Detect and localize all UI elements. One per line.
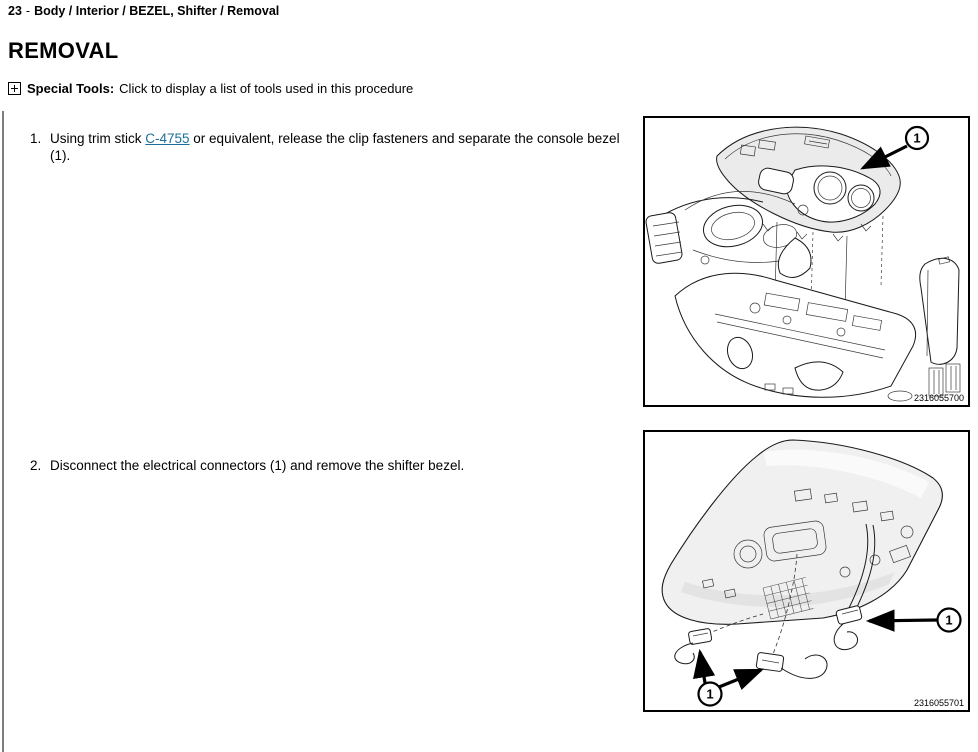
figure-shifter-bezel-connectors: 1 1 2316055701: [643, 430, 970, 712]
figure-console-bezel-removal: 1 2316055700: [643, 116, 970, 407]
breadcrumb-path: Body / Interior / BEZEL, Shifter / Remov…: [34, 4, 279, 18]
figure-number: 2316055701: [914, 698, 964, 708]
callout-label: 1: [945, 613, 952, 628]
service-manual-page: { "breadcrumb": { "section_number": "23"…: [0, 0, 978, 752]
callout-label: 1: [706, 687, 713, 702]
expand-plus-icon[interactable]: [8, 82, 21, 95]
step-text: Disconnect the electrical connectors (1)…: [50, 457, 464, 474]
special-tools-expander[interactable]: Special Tools: Click to display a list o…: [8, 81, 413, 96]
console-bezel-removal-drawing: 1 2316055700: [645, 118, 968, 405]
procedure-step-1: 1. Using trim stick C-4755 or equivalent…: [30, 130, 640, 164]
shifter-bezel-connectors-drawing: 1 1 2316055701: [645, 432, 968, 710]
console-bezel-part: [717, 127, 901, 241]
breadcrumb-separator: -: [26, 4, 30, 18]
figure-number: 2316055700: [914, 393, 964, 403]
step-number: 1.: [30, 130, 46, 164]
special-tool-link[interactable]: C-4755: [145, 131, 189, 146]
step-text-before-link: Using trim stick: [50, 131, 145, 146]
special-tools-label[interactable]: Special Tools:: [27, 81, 114, 96]
callout-label: 1: [913, 131, 920, 146]
callout-1-left: 1: [699, 652, 762, 706]
procedure-left-rule: [2, 111, 4, 752]
breadcrumb-section-number: 23: [8, 4, 22, 18]
callout-1: 1: [863, 127, 928, 168]
special-tools-text: Click to display a list of tools used in…: [119, 81, 413, 96]
bezel-shell-underside: [662, 440, 942, 624]
step-text: Using trim stick C-4755 or equivalent, r…: [50, 130, 640, 164]
step-number: 2.: [30, 457, 46, 474]
callout-1-right: 1: [869, 609, 961, 632]
procedure-step-2: 2. Disconnect the electrical connectors …: [30, 457, 630, 474]
console-body: [675, 273, 916, 401]
armrest-lid: [920, 257, 960, 396]
page-title: REMOVAL: [8, 38, 118, 64]
breadcrumb: 23-Body / Interior / BEZEL, Shifter / Re…: [8, 4, 279, 18]
